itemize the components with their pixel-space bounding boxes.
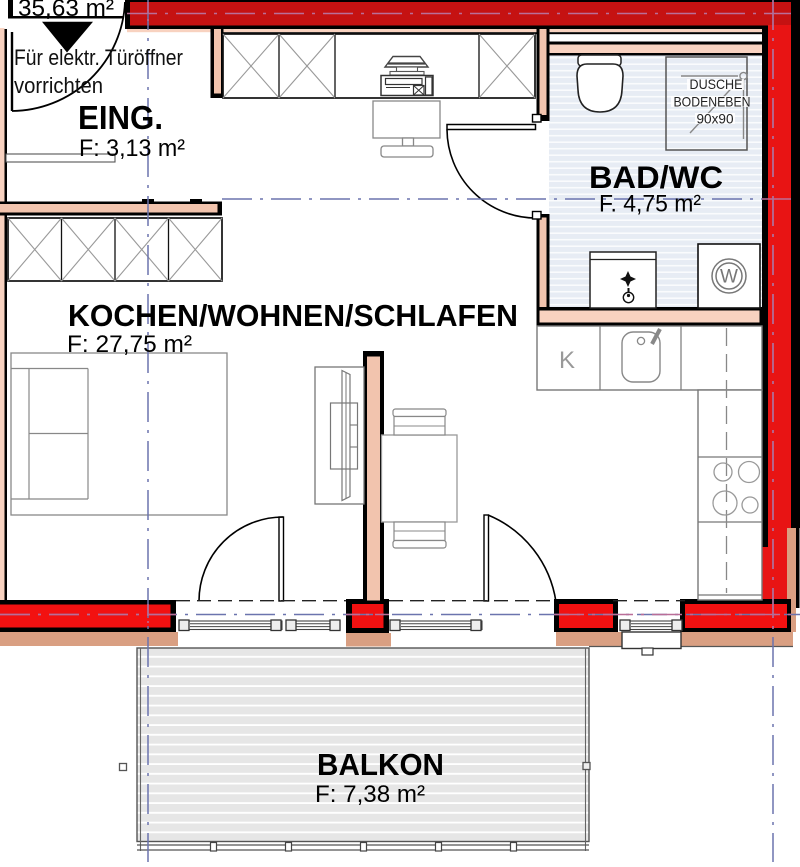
svg-text:F: 27,75 m²: F: 27,75 m² (67, 331, 192, 358)
svg-text:vorrichten: vorrichten (14, 73, 103, 98)
svg-text:F: 7,38 m²: F: 7,38 m² (315, 781, 425, 808)
svg-text:K: K (559, 347, 575, 374)
svg-text:BALKON: BALKON (317, 747, 444, 782)
svg-text:KOCHEN/WOHNEN/SCHLAFEN: KOCHEN/WOHNEN/SCHLAFEN (68, 299, 518, 333)
svg-text:90x90: 90x90 (697, 112, 734, 127)
svg-text:F. 4,75 m²: F. 4,75 m² (599, 191, 701, 218)
svg-text:35,63 m²: 35,63 m² (18, 0, 114, 22)
svg-text:BODENEBEN: BODENEBEN (674, 95, 751, 110)
svg-text:Für elektr. Türöffner: Für elektr. Türöffner (14, 45, 183, 70)
svg-text:W: W (720, 267, 738, 288)
svg-text:DUSCHE: DUSCHE (690, 76, 743, 92)
svg-text:F: 3,13 m²: F: 3,13 m² (79, 135, 185, 162)
svg-text:EING.: EING. (78, 99, 163, 136)
